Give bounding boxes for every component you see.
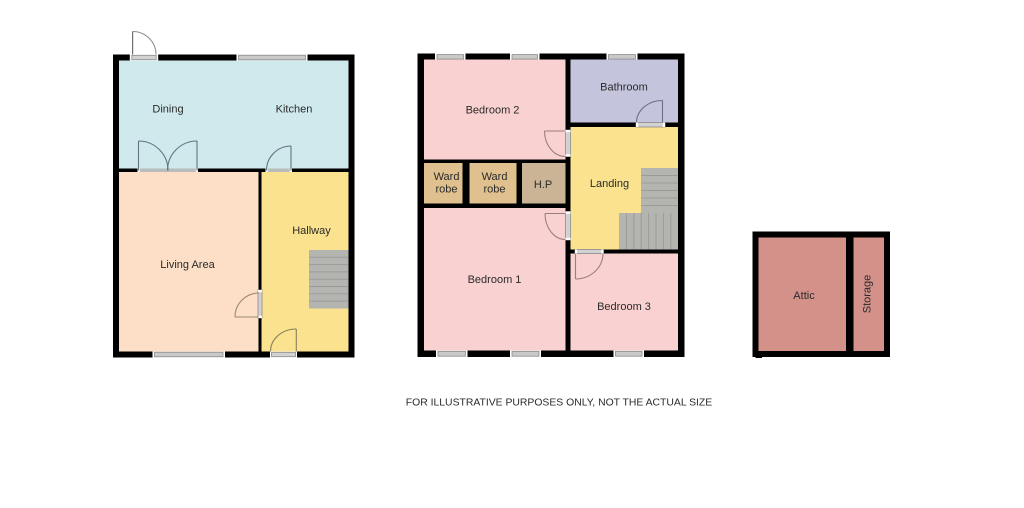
svg-text:FOR ILLUSTRATIVE PURPOSES ONLY: FOR ILLUSTRATIVE PURPOSES ONLY, NOT THE … — [406, 398, 712, 409]
svg-text:Bedroom 3: Bedroom 3 — [597, 301, 651, 313]
svg-text:H.P: H.P — [534, 179, 552, 191]
svg-text:Landing: Landing — [590, 178, 629, 190]
svg-text:Kitchen: Kitchen — [276, 104, 313, 116]
svg-text:Bathroom: Bathroom — [600, 82, 648, 94]
svg-text:Attic: Attic — [793, 290, 815, 302]
svg-text:Living Area: Living Area — [160, 259, 215, 271]
svg-text:Storage: Storage — [862, 275, 874, 314]
svg-text:Bedroom 1: Bedroom 1 — [468, 274, 522, 286]
svg-text:Ward: Ward — [482, 171, 508, 183]
svg-text:robe: robe — [483, 184, 505, 196]
svg-text:Ward: Ward — [434, 171, 460, 183]
svg-text:Bedroom 2: Bedroom 2 — [466, 105, 520, 117]
svg-text:Dining: Dining — [152, 104, 183, 116]
svg-text:robe: robe — [435, 184, 457, 196]
svg-text:Hallway: Hallway — [292, 225, 331, 237]
